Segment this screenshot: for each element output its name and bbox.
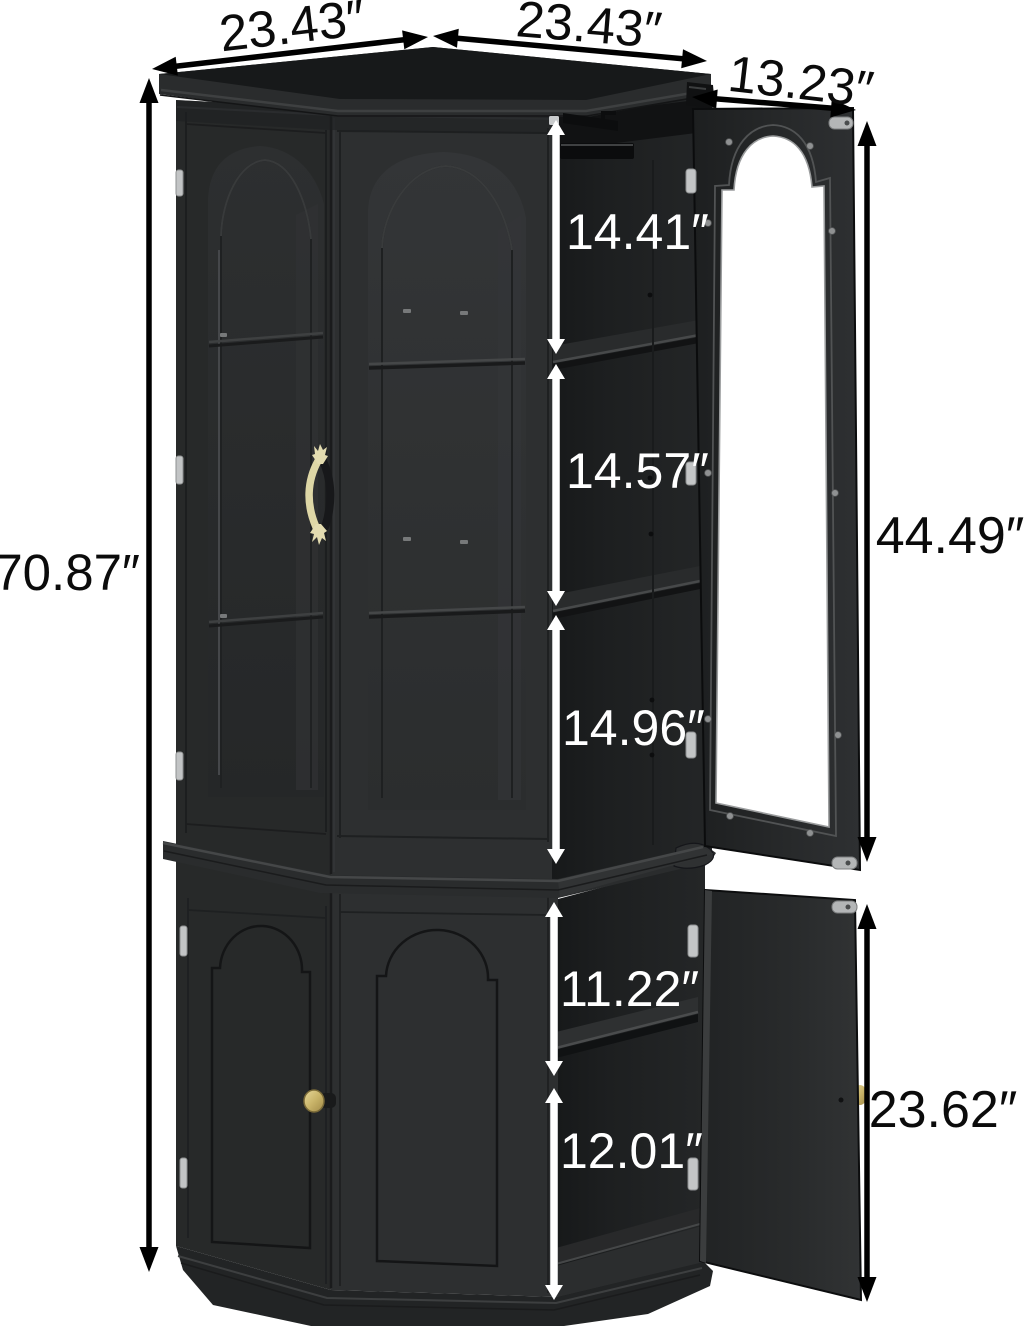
svg-text:23.62″: 23.62″ (869, 1081, 1018, 1139)
svg-text:14.57″: 14.57″ (566, 443, 709, 499)
svg-text:11.22″: 11.22″ (560, 961, 699, 1017)
svg-text:44.49″: 44.49″ (876, 507, 1024, 565)
svg-text:14.96″: 14.96″ (562, 700, 705, 756)
svg-text:12.01″: 12.01″ (560, 1123, 703, 1179)
svg-text:70.87″: 70.87″ (0, 544, 140, 601)
svg-text:14.41″: 14.41″ (566, 204, 709, 260)
